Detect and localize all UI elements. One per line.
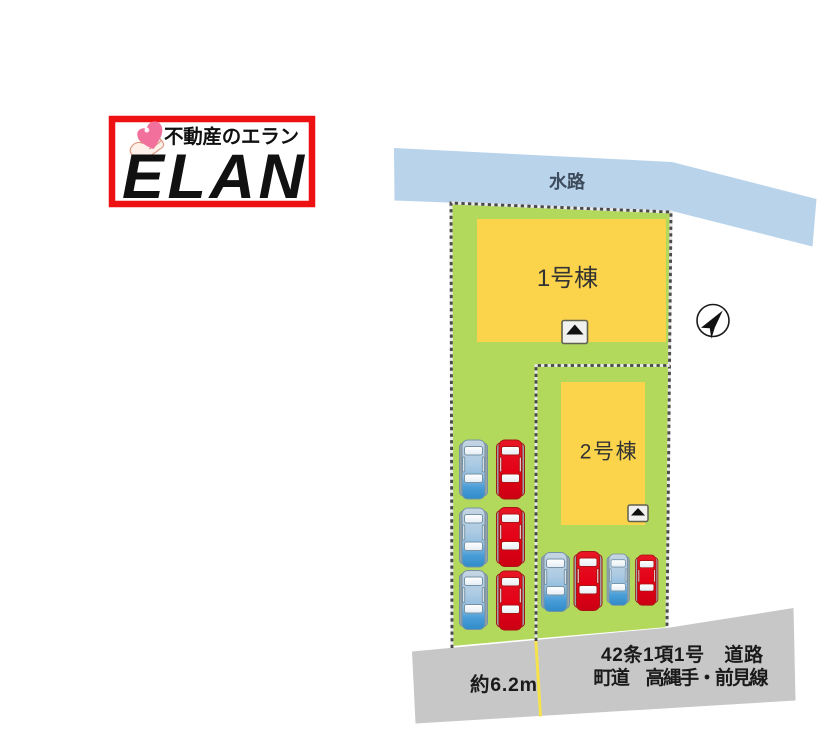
svg-text:1号棟: 1号棟 bbox=[537, 265, 598, 292]
svg-text:町道 高縄手・前見線: 町道 高縄手・前見線 bbox=[594, 666, 769, 689]
svg-text:約6.2m: 約6.2m bbox=[470, 673, 537, 696]
svg-text:水路: 水路 bbox=[549, 171, 586, 192]
svg-text:2号棟: 2号棟 bbox=[580, 441, 638, 464]
svg-text:ELAN: ELAN bbox=[122, 142, 306, 212]
svg-text:42条1項1号 道路: 42条1項1号 道路 bbox=[601, 643, 764, 666]
